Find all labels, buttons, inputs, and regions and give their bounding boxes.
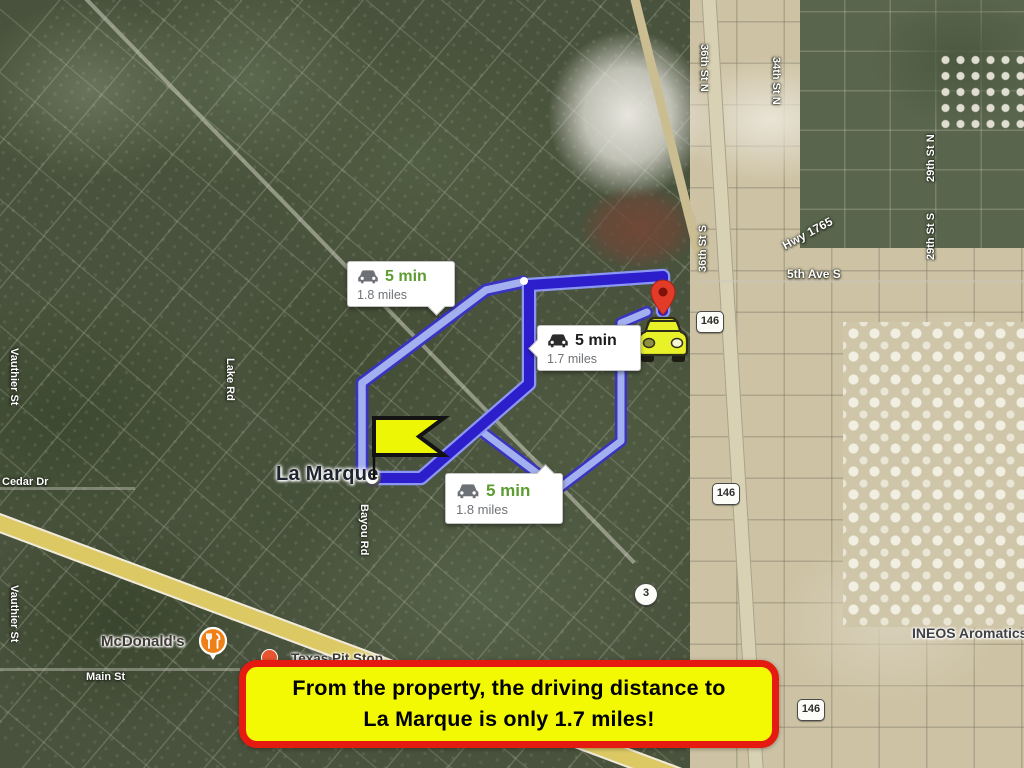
map-screenshot: 146 146 146 3 Vauthier St Vauthier St Ce… bbox=[0, 0, 1024, 768]
car-icon bbox=[357, 269, 379, 285]
car-icon bbox=[547, 333, 569, 349]
route-distance: 1.7 miles bbox=[547, 352, 631, 366]
route-bubble-south[interactable]: 5 min 1.8 miles bbox=[445, 473, 563, 524]
street-label-main-st: Main St bbox=[86, 671, 125, 683]
route-bubble-selected[interactable]: 5 min 1.7 miles bbox=[537, 325, 641, 371]
hwy-3-shield: 3 bbox=[634, 583, 658, 606]
hwy-146-shield: 146 bbox=[696, 311, 724, 333]
route-distance: 1.8 miles bbox=[357, 288, 445, 302]
route-junction-dot bbox=[520, 277, 528, 285]
route-distance: 1.8 miles bbox=[456, 502, 552, 517]
banner-line-2: La Marque is only 1.7 miles! bbox=[363, 704, 654, 735]
poi-label-mcdonalds[interactable]: McDonald's bbox=[101, 633, 185, 650]
street-label-lake-rd: Lake Rd bbox=[224, 358, 236, 401]
street-label-5th-ave-s: 5th Ave S bbox=[787, 267, 841, 281]
street-label-36th-st-s: 36th St S bbox=[697, 225, 709, 272]
route-bubble-north[interactable]: 5 min 1.8 miles bbox=[347, 261, 455, 307]
hwy-146-shield: 146 bbox=[797, 699, 825, 721]
street-label-34th-st-n: 34th St N bbox=[770, 57, 782, 105]
route-overlay bbox=[0, 0, 1024, 768]
street-label-29th-st-s: 29th St S bbox=[925, 213, 937, 260]
property-distance-banner: From the property, the driving distance … bbox=[239, 660, 779, 748]
street-label-bayou-rd: Bayou Rd bbox=[358, 504, 370, 555]
city-label-la-marque: La Marque bbox=[276, 463, 379, 486]
mcdonalds-restaurant-pin-icon[interactable] bbox=[197, 626, 229, 664]
street-label-vauthier-st: Vauthier St bbox=[8, 585, 20, 642]
property-flag-marker bbox=[368, 413, 450, 483]
street-label-vauthier-st: Vauthier St bbox=[8, 348, 20, 405]
destination-pin-icon[interactable] bbox=[649, 279, 677, 317]
car-marker-icon bbox=[634, 314, 692, 364]
street-label-36th-st-n: 36th St N bbox=[698, 44, 710, 92]
route-duration: 5 min bbox=[385, 267, 427, 287]
banner-line-1: From the property, the driving distance … bbox=[292, 673, 725, 704]
hwy-146-shield: 146 bbox=[712, 483, 740, 505]
route-duration: 5 min bbox=[486, 481, 530, 501]
street-label-cedar-dr: Cedar Dr bbox=[2, 476, 48, 488]
street-label-29th-st-n: 29th St N bbox=[925, 134, 937, 182]
car-icon bbox=[456, 483, 480, 500]
poi-label-ineos-aromatics: INEOS Aromatics bbox=[912, 625, 1024, 641]
route-duration: 5 min bbox=[575, 331, 617, 351]
